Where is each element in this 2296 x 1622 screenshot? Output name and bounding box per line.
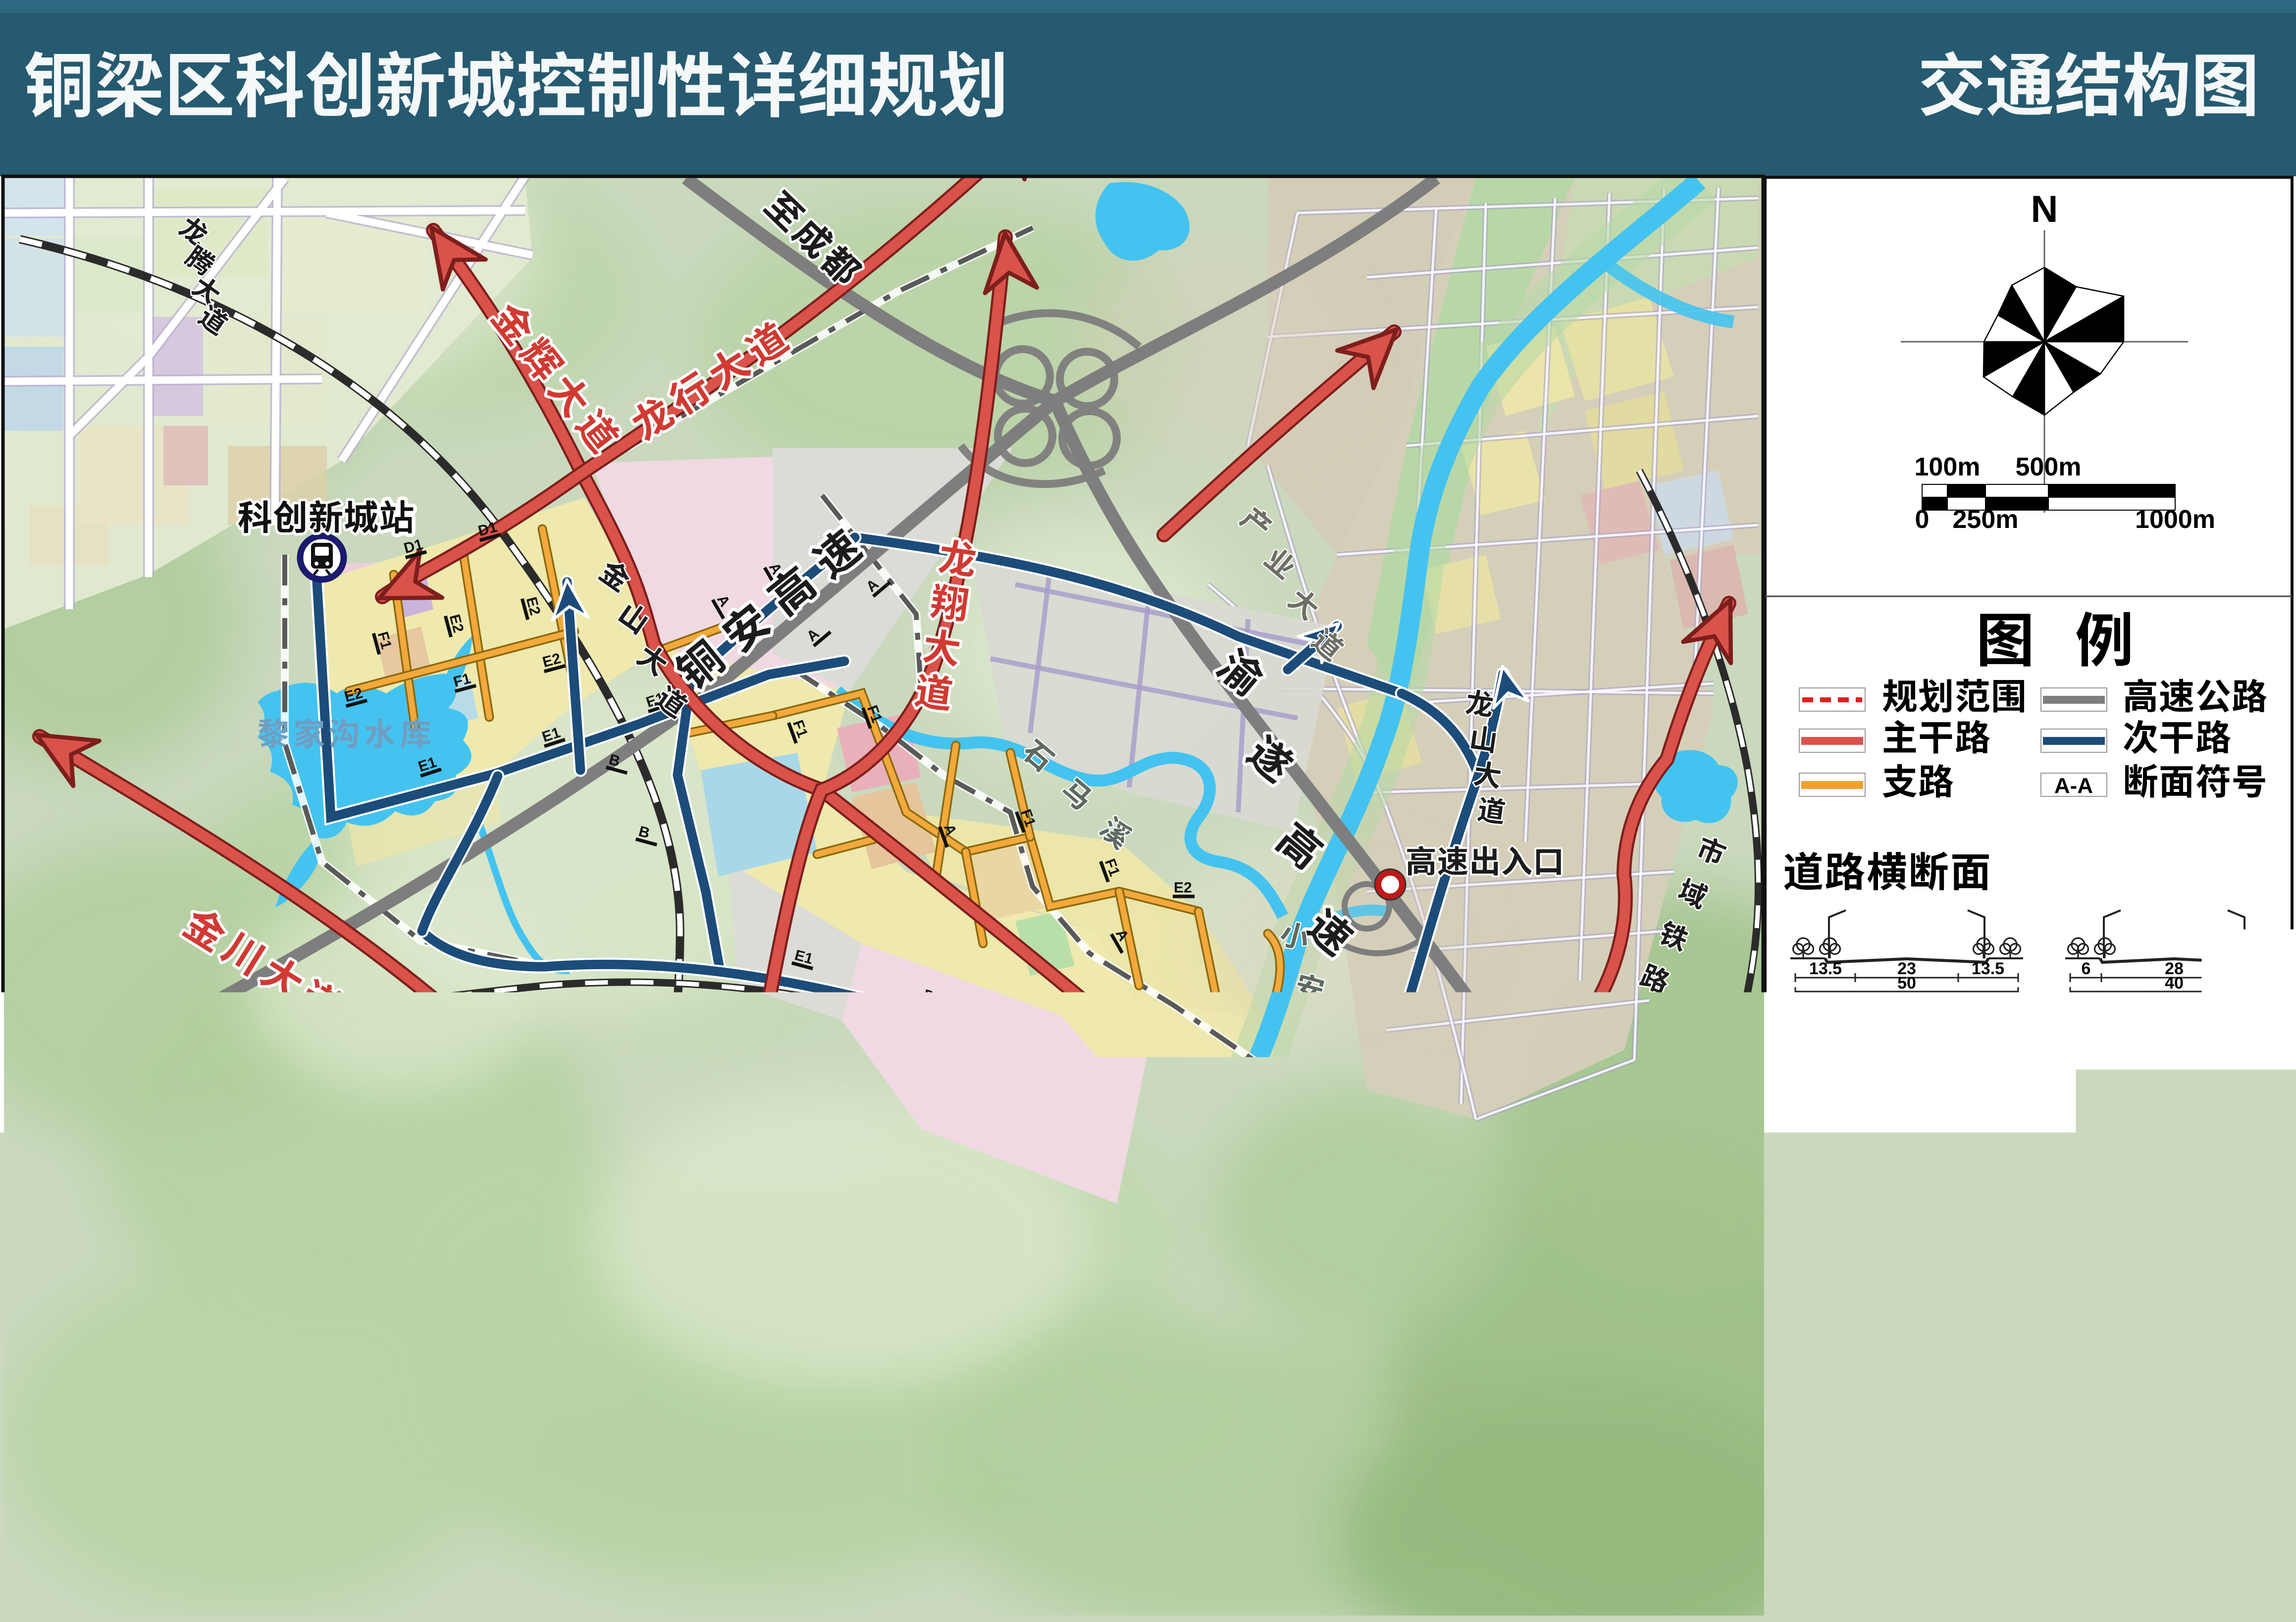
svg-text:18: 18 (2207, 1335, 2226, 1354)
svg-text:6: 6 (2082, 959, 2091, 978)
svg-text:32: 32 (2165, 1083, 2184, 1101)
svg-text:40: 40 (2165, 974, 2184, 993)
svg-text:1000m: 1000m (2135, 505, 2215, 534)
svg-text:学: 学 (1110, 1195, 1145, 1233)
svg-text:32: 32 (1897, 1216, 1916, 1235)
svg-text:4.5: 4.5 (1916, 1321, 1939, 1340)
svg-text:站: 站 (379, 499, 414, 537)
svg-text:100m: 100m (1915, 453, 1981, 481)
svg-text:36: 36 (1897, 1083, 1916, 1101)
svg-text:3: 3 (2254, 1202, 2264, 1221)
svg-text:A-A: A-A (2054, 774, 2093, 798)
svg-text:B-B: B-B (2092, 993, 2135, 1019)
svg-text:500m: 500m (2016, 453, 2082, 481)
svg-text:E1-E1: E1-E1 (2078, 1235, 2144, 1261)
svg-text:24: 24 (1855, 1335, 1874, 1354)
svg-text:3: 3 (2106, 1321, 2115, 1340)
svg-text:24: 24 (2165, 1216, 2184, 1235)
svg-text:250m: 250m (1953, 505, 2019, 534)
svg-text:D1-D1: D1-D1 (2078, 1101, 2147, 1128)
svg-text:A-A: A-A (1825, 993, 1867, 1019)
svg-text:4: 4 (2155, 1321, 2165, 1340)
svg-text:0: 0 (1915, 505, 1930, 534)
svg-text:8: 8 (1979, 1202, 1988, 1221)
svg-text:4.5: 4.5 (1789, 1321, 1813, 1340)
svg-text:N: N (2031, 188, 2058, 230)
svg-text:D2-D2: D2-D2 (1811, 1235, 1879, 1261)
svg-text:3: 3 (1982, 1321, 1991, 1340)
svg-text:F2-F2: F2-F2 (2137, 1358, 2190, 1379)
svg-text:E2: E2 (1174, 880, 1192, 896)
svg-text:6: 6 (2258, 959, 2267, 978)
svg-text:F1-F1: F1-F1 (1968, 1358, 2021, 1379)
svg-text:3: 3 (2085, 1202, 2094, 1221)
svg-text:50: 50 (1897, 974, 1916, 993)
svg-text:6.5: 6.5 (1810, 1068, 1833, 1087)
svg-text:站: 站 (1181, 1195, 1215, 1233)
svg-text:站: 站 (597, 1488, 632, 1527)
svg-text:4.5: 4.5 (2075, 1068, 2098, 1087)
svg-text:4: 4 (2269, 1321, 2279, 1340)
svg-text:13.5: 13.5 (1809, 959, 1842, 978)
svg-text:E2-E2: E2-E2 (1784, 1358, 1839, 1379)
svg-text:4.5: 4.5 (2249, 1068, 2273, 1087)
svg-text:园: 园 (1146, 1195, 1180, 1233)
svg-text:C-C: C-C (1825, 1101, 1867, 1128)
svg-text:6.5: 6.5 (1980, 1068, 2003, 1087)
svg-text:13.5: 13.5 (1972, 959, 2004, 978)
svg-text:8: 8 (1826, 1202, 1835, 1221)
svg-text:18: 18 (2039, 1335, 2058, 1354)
